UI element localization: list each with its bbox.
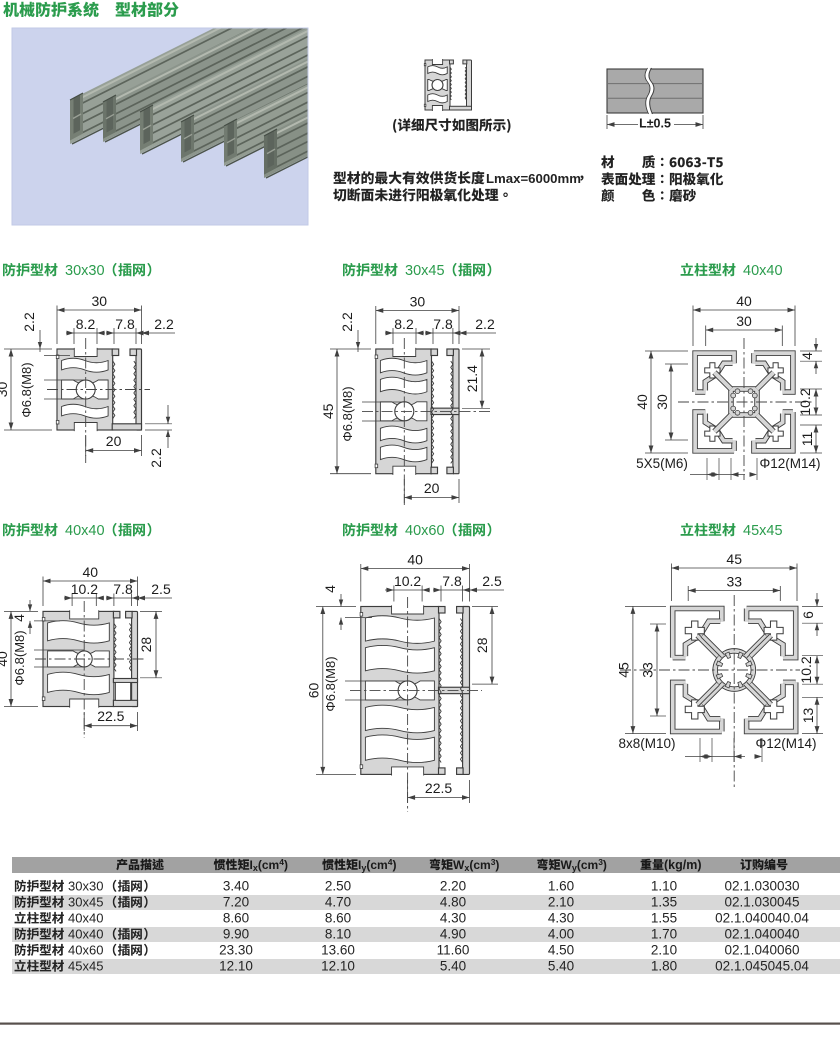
svg-text:Φ6.8(M8): Φ6.8(M8) xyxy=(19,362,34,417)
svg-text:6: 6 xyxy=(800,611,816,619)
svg-text:45x45: 45x45 xyxy=(68,959,103,974)
svg-text:2.5: 2.5 xyxy=(151,581,171,597)
svg-text:4.00: 4.00 xyxy=(548,927,574,942)
svg-text:4: 4 xyxy=(11,614,27,622)
svg-text:4: 4 xyxy=(322,585,338,593)
svg-text:28: 28 xyxy=(138,637,154,653)
svg-text:2.2: 2.2 xyxy=(148,448,164,468)
svg-text:30: 30 xyxy=(0,382,10,398)
svg-text:28: 28 xyxy=(474,637,490,653)
svg-text:30x45: 30x45 xyxy=(68,895,103,910)
svg-text:11: 11 xyxy=(799,432,815,447)
svg-text:40: 40 xyxy=(407,552,423,568)
svg-text:30: 30 xyxy=(654,394,670,410)
svg-text:2.2: 2.2 xyxy=(475,316,495,332)
svg-text:3.40: 3.40 xyxy=(223,879,249,894)
svg-text:10.2: 10.2 xyxy=(798,656,814,683)
svg-text:30: 30 xyxy=(410,294,426,310)
svg-text:5.40: 5.40 xyxy=(440,959,466,974)
svg-text:Lmax=6000mm: Lmax=6000mm xyxy=(486,171,581,186)
svg-text:12.10: 12.10 xyxy=(219,959,253,974)
svg-text:Φ6.8(M8): Φ6.8(M8) xyxy=(12,630,27,685)
svg-text:30x45: 30x45 xyxy=(405,263,445,279)
svg-text:40x40: 40x40 xyxy=(68,927,103,942)
svg-text:10.2: 10.2 xyxy=(797,388,813,415)
svg-text:40: 40 xyxy=(82,564,98,580)
svg-text:8.2: 8.2 xyxy=(394,316,414,332)
svg-text:1.60: 1.60 xyxy=(548,879,574,894)
svg-text:40x60: 40x60 xyxy=(405,523,445,539)
svg-text:45: 45 xyxy=(726,551,742,567)
svg-text:20: 20 xyxy=(106,433,122,449)
svg-text:40x60: 40x60 xyxy=(68,943,103,958)
svg-text:10.2: 10.2 xyxy=(71,581,98,597)
svg-text:8.60: 8.60 xyxy=(325,911,351,926)
svg-text:45: 45 xyxy=(320,403,336,419)
svg-text:20: 20 xyxy=(424,480,440,496)
svg-text:45x45: 45x45 xyxy=(743,523,783,539)
svg-text:7.8: 7.8 xyxy=(442,573,462,589)
svg-text:02.1.030045: 02.1.030045 xyxy=(724,895,799,910)
svg-text:2.5: 2.5 xyxy=(482,573,502,589)
svg-text:02.1.040040.04: 02.1.040040.04 xyxy=(715,911,809,926)
svg-text:7.8: 7.8 xyxy=(433,316,453,332)
svg-text:4.30: 4.30 xyxy=(440,911,466,926)
svg-text:40x40: 40x40 xyxy=(68,911,103,926)
svg-text:22.5: 22.5 xyxy=(97,708,124,724)
svg-text:4.50: 4.50 xyxy=(548,943,574,958)
svg-text:02.1.040060: 02.1.040060 xyxy=(724,943,799,958)
svg-text:33: 33 xyxy=(640,662,656,678)
svg-text:30x30: 30x30 xyxy=(68,879,103,894)
svg-text:02.1.040040: 02.1.040040 xyxy=(724,927,799,942)
svg-text:2.20: 2.20 xyxy=(440,879,466,894)
svg-text:8.2: 8.2 xyxy=(76,316,96,332)
svg-text:Φ6.8(M8): Φ6.8(M8) xyxy=(340,386,355,441)
svg-text:10.2: 10.2 xyxy=(394,573,421,589)
svg-text:60: 60 xyxy=(306,682,322,698)
svg-text:4.90: 4.90 xyxy=(440,927,466,942)
svg-text:22.5: 22.5 xyxy=(425,780,452,796)
svg-text:30x30: 30x30 xyxy=(65,263,105,279)
svg-text:30: 30 xyxy=(736,313,752,329)
svg-text:7.8: 7.8 xyxy=(113,581,133,597)
svg-text:21.4: 21.4 xyxy=(464,365,480,392)
svg-text:Φ6.8(M8): Φ6.8(M8) xyxy=(323,656,338,711)
svg-text:40: 40 xyxy=(634,394,650,410)
svg-text:30: 30 xyxy=(91,293,107,309)
svg-text:1.55: 1.55 xyxy=(651,911,677,926)
svg-text:5X5(M6): 5X5(M6) xyxy=(636,456,688,471)
svg-text:Φ12(M14): Φ12(M14) xyxy=(759,456,820,471)
svg-text:8x8(M10): 8x8(M10) xyxy=(618,736,675,751)
svg-text:L±0.5: L±0.5 xyxy=(639,117,671,131)
svg-text:1.35: 1.35 xyxy=(651,895,677,910)
svg-text:11.60: 11.60 xyxy=(437,943,470,958)
svg-text:4.80: 4.80 xyxy=(440,895,466,910)
svg-text:33: 33 xyxy=(726,574,742,590)
svg-text:40: 40 xyxy=(736,293,752,309)
svg-text:8.10: 8.10 xyxy=(325,927,351,942)
svg-text:5.40: 5.40 xyxy=(548,959,574,974)
svg-text:2.50: 2.50 xyxy=(325,879,351,894)
svg-text:2.10: 2.10 xyxy=(651,943,677,958)
svg-text:02.1.045045.04: 02.1.045045.04 xyxy=(715,959,809,974)
svg-text:8.60: 8.60 xyxy=(223,911,249,926)
svg-text:45: 45 xyxy=(616,662,632,678)
svg-text:7.8: 7.8 xyxy=(115,316,135,332)
svg-text:4: 4 xyxy=(799,352,815,360)
svg-text:4.30: 4.30 xyxy=(548,911,574,926)
svg-text:40x40: 40x40 xyxy=(743,263,783,279)
svg-text:2.2: 2.2 xyxy=(339,312,355,332)
svg-text:4.70: 4.70 xyxy=(325,895,351,910)
svg-text:7.20: 7.20 xyxy=(223,895,249,910)
svg-text:13: 13 xyxy=(800,707,816,723)
svg-text:1.80: 1.80 xyxy=(651,959,677,974)
svg-text:2.2: 2.2 xyxy=(154,316,174,332)
svg-text:02.1.030030: 02.1.030030 xyxy=(724,879,799,894)
svg-text:40x40: 40x40 xyxy=(65,523,105,539)
svg-text:9.90: 9.90 xyxy=(223,927,249,942)
svg-text:Φ12(M14): Φ12(M14) xyxy=(755,736,816,751)
svg-text:23.30: 23.30 xyxy=(219,943,253,958)
svg-text:1.10: 1.10 xyxy=(651,879,677,894)
svg-text:13.60: 13.60 xyxy=(321,943,355,958)
svg-text:12.10: 12.10 xyxy=(321,959,355,974)
svg-text:(kg/m): (kg/m) xyxy=(664,858,702,872)
svg-text:1.70: 1.70 xyxy=(651,927,677,942)
svg-text:2.10: 2.10 xyxy=(548,895,574,910)
svg-text:40: 40 xyxy=(0,651,10,667)
svg-text:2.2: 2.2 xyxy=(21,312,37,332)
